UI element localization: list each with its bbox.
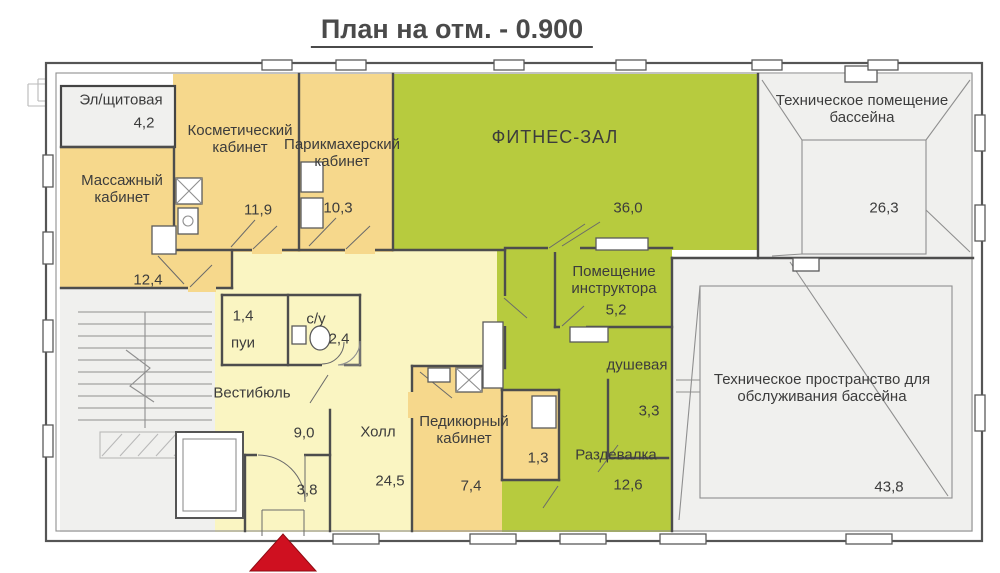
room-label-massage: Массажный кабинет bbox=[67, 173, 177, 207]
room-label-cleaning: пуи bbox=[231, 336, 255, 353]
room-label-electrical: Эл/щитовая bbox=[79, 93, 162, 110]
room-label-wc: с/у bbox=[306, 312, 325, 329]
room-label-fitness: ФИТНЕС-ЗАЛ bbox=[492, 127, 619, 147]
room-area-vestibule: 9,0 bbox=[294, 426, 315, 443]
room-area-small-room: 1,3 bbox=[528, 451, 549, 468]
room-label-vestibule: Вестибюль bbox=[213, 386, 290, 403]
room-area-pool-tech-room: 26,3 bbox=[869, 201, 898, 218]
room-area-cosmetic: 11,9 bbox=[244, 203, 272, 220]
room-area-electrical: 4,2 bbox=[134, 116, 155, 133]
room-area-shower: 3,3 bbox=[639, 404, 660, 421]
room-area-hall: 24,5 bbox=[375, 474, 404, 491]
room-area-pool-tech-space: 43,8 bbox=[874, 480, 903, 497]
floorplan-page: План на отм. - 0.900 Эл/щитовая Массажны… bbox=[0, 0, 1000, 573]
room-area-pedicure: 7,4 bbox=[461, 479, 482, 496]
room-area-tambour: 3,8 bbox=[297, 483, 318, 500]
room-label-pedicure: Педикюрный кабинет bbox=[404, 414, 524, 448]
room-area-massage: 12,4 bbox=[133, 273, 162, 290]
room-area-wc: 2,4 bbox=[329, 332, 350, 349]
room-area-cleaning: 1,4 bbox=[233, 309, 254, 326]
room-label-hall: Холл bbox=[360, 425, 395, 442]
plan-title: План на отм. - 0.900 bbox=[311, 14, 593, 48]
room-label-hairdresser: Парикмахерский кабинет bbox=[272, 137, 412, 171]
room-area-changing: 12,6 bbox=[613, 478, 642, 495]
room-label-changing: Раздевалка bbox=[575, 448, 656, 465]
room-label-shower: душевая bbox=[607, 358, 668, 375]
room-label-pool-tech-space: Техническое пространство для обслуживани… bbox=[697, 372, 947, 406]
room-area-fitness: 36,0 bbox=[613, 201, 642, 218]
room-area-hairdresser: 10,3 bbox=[323, 201, 352, 218]
room-label-pool-tech-room: Техническое помещение бассейна bbox=[752, 93, 972, 127]
room-label-instructor: Помещение инструктора bbox=[544, 264, 684, 298]
room-area-instructor: 5,2 bbox=[606, 303, 627, 320]
